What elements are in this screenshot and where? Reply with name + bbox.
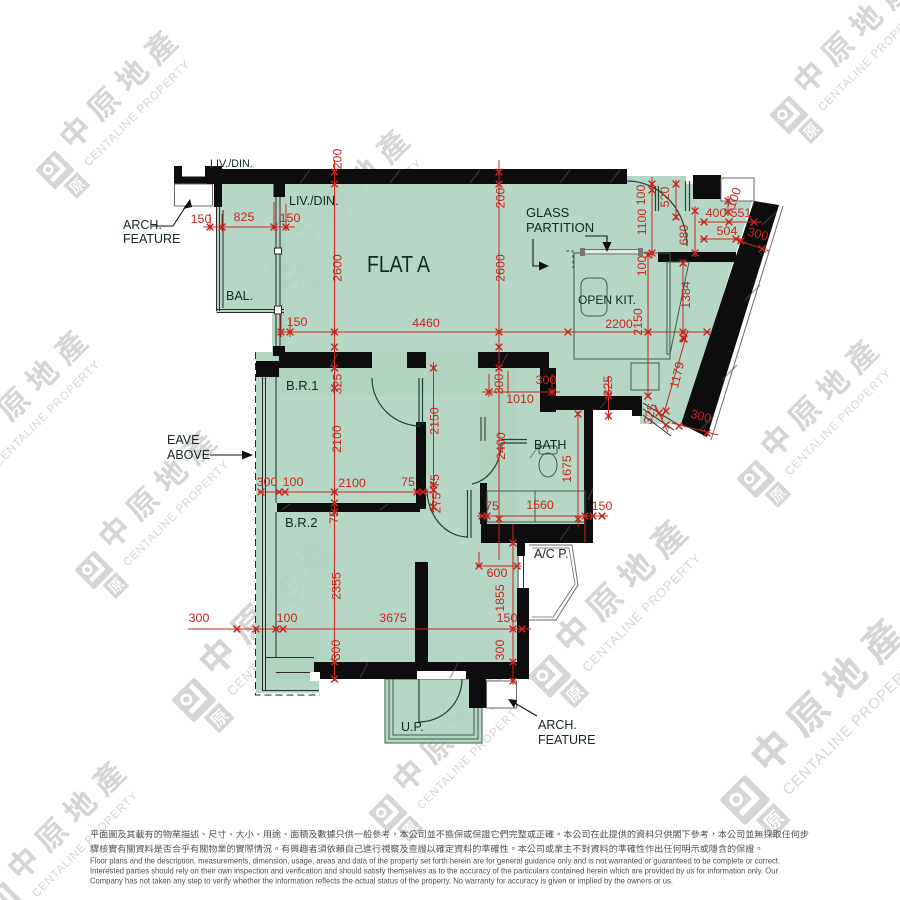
svg-text:75: 75 <box>401 475 415 489</box>
svg-text:325: 325 <box>601 376 615 397</box>
svg-text:400: 400 <box>706 206 727 220</box>
svg-text:Floor plans and the descriptio: Floor plans and the description, measure… <box>90 857 780 866</box>
svg-text:2150: 2150 <box>428 407 442 435</box>
svg-text:FLAT A: FLAT A <box>367 251 431 277</box>
svg-text:Interested parties should rely: Interested parties should rely on their … <box>90 867 778 876</box>
svg-text:75: 75 <box>327 510 341 524</box>
svg-text:325: 325 <box>331 374 345 395</box>
svg-text:150: 150 <box>191 212 212 226</box>
svg-text:1384: 1384 <box>679 281 693 309</box>
svg-text:200: 200 <box>331 149 345 170</box>
svg-text:2150: 2150 <box>631 308 645 336</box>
svg-text:1675: 1675 <box>560 455 574 483</box>
svg-text:LIV./DIN.: LIV./DIN. <box>289 194 339 208</box>
svg-text:100: 100 <box>635 256 649 277</box>
svg-text:1100: 1100 <box>635 209 649 236</box>
svg-text:FEATURE: FEATURE <box>538 733 595 747</box>
svg-text:825: 825 <box>234 210 255 224</box>
svg-text:ARCH.: ARCH. <box>123 218 162 232</box>
svg-text:2200: 2200 <box>605 317 633 331</box>
svg-text:150: 150 <box>497 611 518 625</box>
svg-text:150: 150 <box>592 499 613 513</box>
svg-text:551: 551 <box>731 206 752 220</box>
svg-text:300: 300 <box>257 475 278 489</box>
svg-text:B.R.1: B.R.1 <box>286 378 319 393</box>
svg-text:GLASS: GLASS <box>526 205 570 220</box>
svg-text:100: 100 <box>283 475 304 489</box>
svg-text:1560: 1560 <box>526 498 554 512</box>
svg-text:300: 300 <box>492 374 506 395</box>
svg-text:OPEN KIT.: OPEN KIT. <box>578 293 636 307</box>
svg-text:75: 75 <box>428 474 442 488</box>
svg-text:504: 504 <box>717 224 738 238</box>
svg-text:300: 300 <box>189 611 210 625</box>
svg-text:200: 200 <box>494 188 508 209</box>
svg-text:520: 520 <box>658 187 672 208</box>
svg-text:2100: 2100 <box>338 476 366 490</box>
svg-text:BATH: BATH <box>534 438 566 452</box>
svg-text:75: 75 <box>485 499 499 513</box>
svg-text:U.P.: U.P. <box>401 720 424 734</box>
svg-text:300: 300 <box>536 373 557 387</box>
svg-text:300: 300 <box>329 640 343 661</box>
svg-text:275: 275 <box>430 493 444 514</box>
svg-text:680: 680 <box>677 225 691 246</box>
svg-text:100: 100 <box>277 611 298 625</box>
svg-text:150: 150 <box>287 315 308 329</box>
svg-text:2400: 2400 <box>494 432 508 460</box>
svg-text:1010: 1010 <box>506 392 534 406</box>
svg-text:2100: 2100 <box>330 425 344 453</box>
svg-text:ARCH.: ARCH. <box>538 718 577 732</box>
svg-text:2355: 2355 <box>330 572 344 600</box>
svg-text:100: 100 <box>634 185 648 206</box>
svg-text:EAVE: EAVE <box>167 433 199 447</box>
svg-text:A/C P.: A/C P. <box>534 547 569 561</box>
svg-text:LIV./DIN.: LIV./DIN. <box>210 158 253 170</box>
svg-text:300: 300 <box>493 640 507 661</box>
svg-text:4460: 4460 <box>412 316 440 330</box>
svg-text:B.R.2: B.R.2 <box>285 515 318 530</box>
svg-text:2600: 2600 <box>494 254 508 282</box>
svg-text:FEATURE: FEATURE <box>123 232 180 246</box>
svg-text:2600: 2600 <box>331 254 345 282</box>
svg-text:150: 150 <box>280 211 301 225</box>
svg-text:ABOVE: ABOVE <box>167 448 210 462</box>
svg-text:600: 600 <box>487 566 508 580</box>
svg-text:PARTITION: PARTITION <box>526 220 594 235</box>
svg-text:Company has not taken any step: Company has not taken any step to verify… <box>90 877 673 886</box>
svg-text:3675: 3675 <box>379 611 407 625</box>
svg-text:1855: 1855 <box>493 584 507 612</box>
svg-text:BAL.: BAL. <box>226 289 253 303</box>
